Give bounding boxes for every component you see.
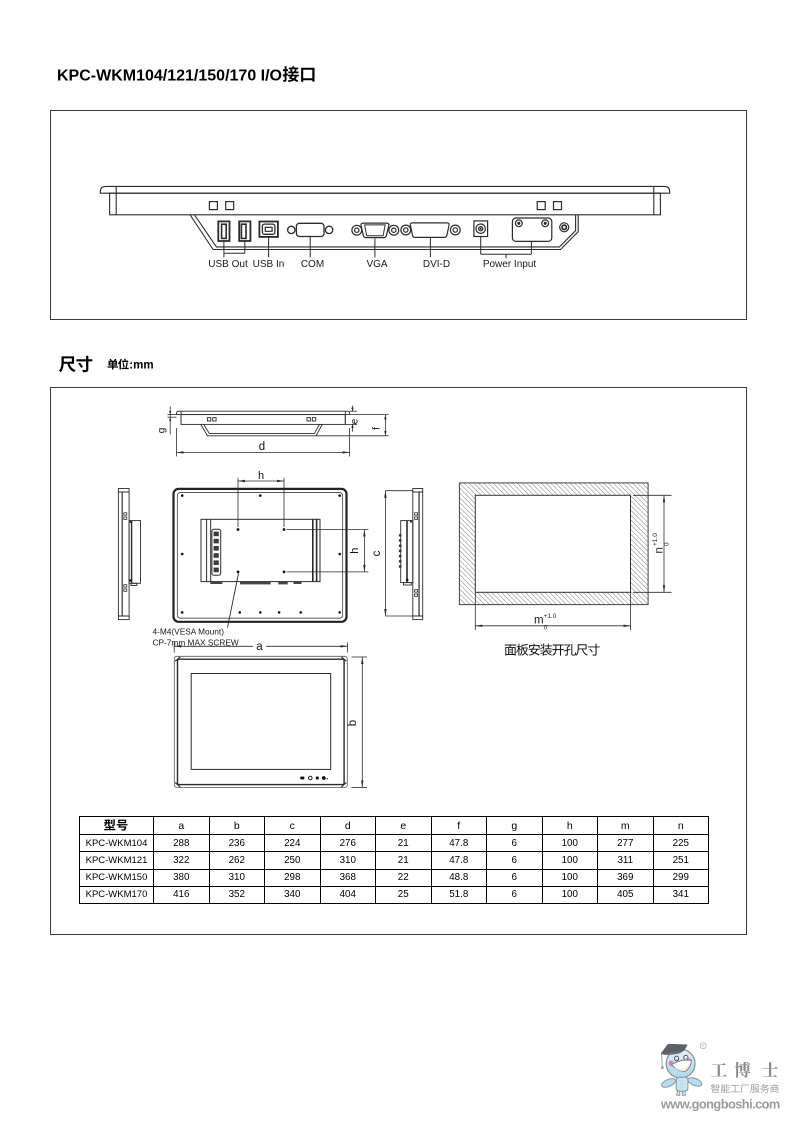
svg-text:USB Out: USB Out	[208, 259, 248, 270]
svg-text:VGA: VGA	[366, 259, 387, 270]
svg-text:0: 0	[544, 625, 548, 632]
svg-text:a: a	[256, 641, 263, 653]
svg-text:R: R	[702, 1043, 705, 1048]
svg-text:+1.0: +1.0	[544, 613, 557, 620]
svg-text:h: h	[349, 548, 361, 554]
svg-text:m: m	[534, 614, 544, 626]
svg-text:c: c	[371, 550, 383, 556]
svg-text:Power Input: Power Input	[483, 259, 537, 270]
svg-text:f: f	[372, 427, 383, 430]
svg-text:KPC-WKM104/121/150/170 I/O: KPC-WKM104/121/150/170 I/O	[57, 68, 282, 85]
svg-text:n: n	[654, 547, 666, 553]
svg-text:e: e	[350, 418, 361, 424]
svg-text:0: 0	[664, 542, 671, 546]
svg-text:g: g	[157, 428, 168, 434]
svg-text:d: d	[259, 441, 265, 453]
svg-text:4-M4(VESA Mount): 4-M4(VESA Mount)	[153, 627, 225, 637]
svg-text::mm: :mm	[129, 360, 153, 372]
svg-text:h: h	[258, 470, 264, 482]
svg-text:b: b	[347, 720, 359, 726]
svg-text:COM: COM	[301, 259, 324, 270]
svg-text:www.gongboshi.com: www.gongboshi.com	[660, 1097, 780, 1112]
svg-text:USB In: USB In	[253, 259, 285, 270]
svg-text:DVI-D: DVI-D	[423, 259, 450, 270]
svg-text:+1.0: +1.0	[652, 533, 659, 546]
